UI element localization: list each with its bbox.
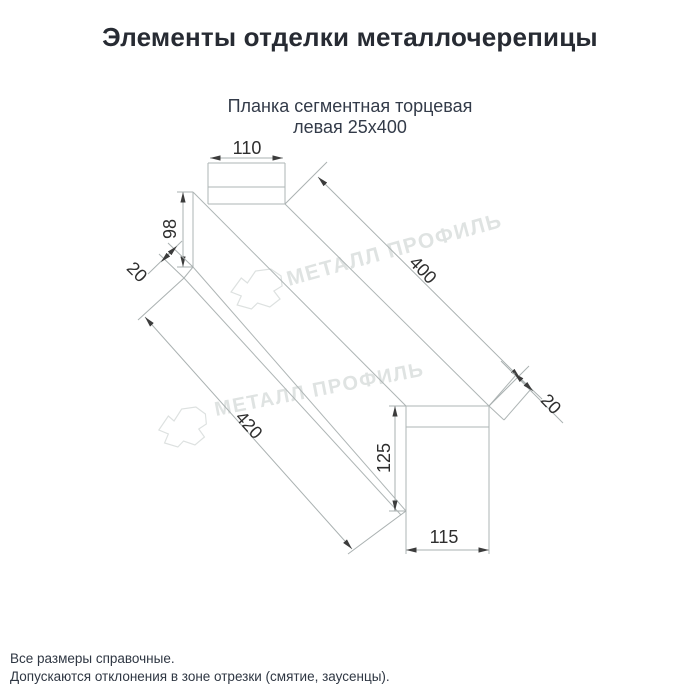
catalog-page: Элементы отделки металлочерепицы Планка … — [0, 0, 700, 700]
brand-cloud-icon — [159, 407, 207, 447]
brand-watermark-text: МЕТАЛЛ ПРОФИЛЬ — [284, 209, 505, 291]
technical-drawing: МЕТАЛЛ ПРОФИЛЬ МЕТАЛЛ ПРОФИЛЬ — [0, 0, 700, 700]
watermark-lower: МЕТАЛЛ ПРОФИЛЬ — [159, 359, 426, 447]
footer-notes: Все размеры справочные. Допускаются откл… — [10, 650, 390, 686]
dimension-far-width: 115 — [406, 527, 489, 550]
dimension-label: 125 — [374, 443, 394, 473]
dimension-label: 400 — [405, 252, 440, 288]
dimension-near-height: 98 — [160, 192, 193, 267]
dimension-top-width: 110 — [210, 138, 283, 158]
dimension-label: 115 — [430, 527, 459, 547]
dimension-bottom-length: 420 — [138, 278, 406, 554]
watermark-upper: МЕТАЛЛ ПРОФИЛЬ — [231, 209, 505, 309]
footer-note-1: Все размеры справочные. — [10, 650, 390, 668]
brand-cloud-icon — [231, 269, 282, 309]
dimension-label: 20 — [537, 390, 565, 418]
dimension-far-lip: 20 — [501, 361, 565, 423]
dimension-label: 20 — [123, 258, 151, 286]
dimension-far-height: 125 — [374, 406, 406, 511]
dimension-label: 110 — [233, 138, 262, 158]
dimension-label: 98 — [160, 219, 180, 239]
footer-note-2: Допускаются отклонения в зоне отрезки (с… — [10, 668, 390, 686]
